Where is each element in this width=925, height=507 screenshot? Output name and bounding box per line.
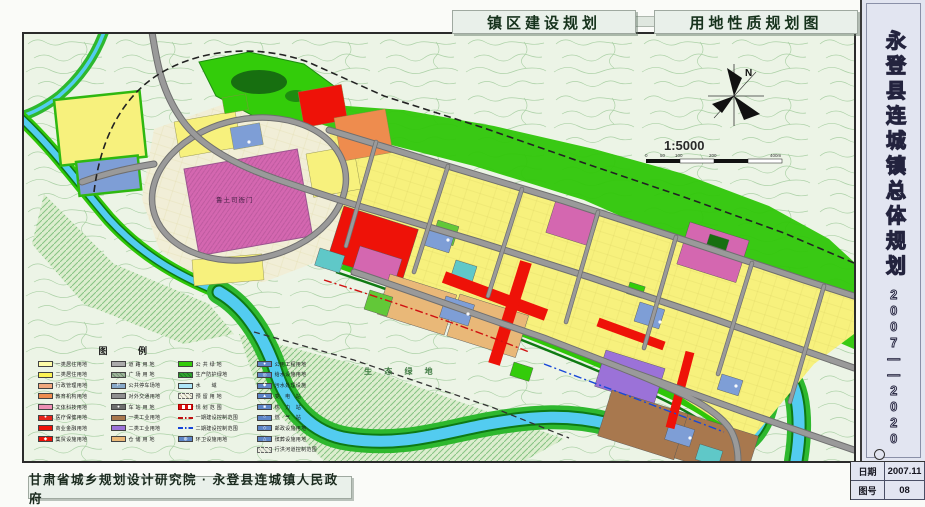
legend-label: 环卫设施用地 — [196, 436, 228, 443]
legend-swatch-icon: ◆ — [44, 437, 47, 442]
legend-swatch-icon: ◎ — [263, 373, 267, 378]
legend-swatch — [111, 425, 126, 431]
scale-text: 1:5000 — [664, 138, 704, 153]
legend-label: 变 电 站 — [275, 393, 302, 400]
scale-tick: 100 — [675, 153, 683, 158]
legend-item: 对外交通用地 — [111, 392, 174, 401]
plan-title-vertical: 永登县连城镇总体规划 — [884, 30, 904, 280]
legend-label: 邮政设施用地 — [275, 425, 307, 432]
legend-item: ◍环卫设施用地 — [178, 435, 253, 444]
legend-swatch-icon: ◇ — [263, 426, 266, 431]
legend-item: ■热 力 站 — [257, 403, 334, 412]
legend-swatch — [38, 425, 53, 431]
legend-swatch — [38, 393, 53, 399]
legend-swatch: ○ — [257, 415, 272, 421]
legend-item: 教育机构用地 — [38, 392, 107, 401]
legend-item: 公 共 绿 地 — [178, 360, 253, 369]
legend-swatch — [257, 447, 272, 453]
legend-swatch — [38, 372, 53, 378]
legend-label: 商业金融用地 — [56, 425, 88, 432]
legend-item: 广 场 用 地 — [111, 371, 174, 380]
legend-item: 规 划 范 围 — [178, 403, 253, 412]
north-label: N — [745, 68, 752, 79]
legend-item: 生产防护绿地 — [178, 371, 253, 380]
legend-swatch — [38, 404, 53, 410]
legend-item: 二类工业用地 — [111, 424, 174, 433]
title-right: 用地性质规划图 — [654, 10, 858, 34]
legend-item: ●公用工程用地 — [257, 360, 334, 369]
legend-label: 一类居住用地 — [56, 361, 88, 368]
legend-label: 道 路 用 地 — [129, 361, 155, 368]
legend-item: 文体科技用地 — [38, 403, 107, 412]
legend-item: 水 域 — [178, 381, 253, 390]
legend-item: 行洪河道控制范围 — [257, 446, 334, 455]
legend-label: 二期建设控制范围 — [196, 425, 238, 432]
legend-label: 仓 储 用 地 — [129, 436, 155, 443]
legend-item: ◆污水处理设施 — [257, 381, 334, 390]
legend-label: 公共停车场地 — [129, 382, 161, 389]
legend-column-4: ●公用工程用地◎给水设施用地◆污水处理设施▲变 电 站■热 力 站○燃 气 站◇… — [257, 360, 334, 454]
seal-circle-icon — [874, 449, 885, 460]
organisation-bar: 甘肃省城乡规划设计研究院 · 永登县连城镇人民政府 — [28, 476, 352, 499]
legend-item: 二期建设控制范围 — [178, 424, 253, 433]
legend-item: ●车 站 用 地 — [111, 403, 174, 412]
legend-swatch — [178, 417, 193, 419]
legend-item: 一类工业用地 — [111, 413, 174, 422]
legend-item: ○燃 气 站 — [257, 413, 334, 422]
legend-item: 道 路 用 地 — [111, 360, 174, 369]
legend-label: 集贸设施用地 — [56, 436, 88, 443]
legend-item: 一类居住用地 — [38, 360, 107, 369]
legend-swatch-icon: P — [117, 383, 120, 388]
legend-swatch: ◆ — [38, 436, 53, 442]
legend-label: 污水处理设施 — [275, 382, 307, 389]
legend-label: 一类工业用地 — [129, 414, 161, 421]
legend-swatch — [111, 393, 126, 399]
legend-label: 二类工业用地 — [129, 425, 161, 432]
legend-columns: 一类居住用地二类居住用地行政管理用地教育机构用地文体科技用地●医疗保健用地商业金… — [38, 360, 334, 454]
legend-item: 二类居住用地 — [38, 371, 107, 380]
legend-label: 热 力 站 — [275, 404, 302, 411]
legend-swatch-icon: ◆ — [263, 383, 266, 388]
legend-swatch-icon: ● — [44, 415, 47, 420]
date-label: 日期 — [851, 462, 885, 481]
legend-swatch: ● — [111, 404, 126, 410]
legend-swatch — [178, 404, 193, 410]
title-left: 镇区建设规划 — [452, 10, 636, 34]
legend-swatch: △ — [257, 436, 272, 442]
legend-column-2: 道 路 用 地广 场 用 地P公共停车场地对外交通用地●车 站 用 地一类工业用… — [111, 360, 174, 454]
legend-column-3: 公 共 绿 地生产防护绿地水 域预 留 用 地规 划 范 围一期建设控制范围二期… — [178, 360, 253, 454]
legend-swatch: ◎ — [257, 372, 272, 378]
legend-item: ▲变 电 站 — [257, 392, 334, 401]
legend-item: 预 留 用 地 — [178, 392, 253, 401]
legend-title: 图 例 — [38, 344, 222, 357]
legend-swatch — [111, 436, 126, 442]
plan-period-vertical: 2007——2020 — [887, 288, 900, 448]
legend-swatch — [178, 427, 193, 429]
legend-swatch-icon: ◍ — [184, 437, 188, 442]
scale-tick: 400m — [770, 153, 782, 158]
legend-swatch: ◇ — [257, 425, 272, 431]
legend-swatch — [111, 361, 126, 367]
eco-green-label: 生 态 绿 地 — [364, 366, 438, 376]
legend-swatch-icon: ○ — [263, 415, 266, 420]
legend-swatch — [178, 393, 193, 399]
legend-item: ◇邮政设施用地 — [257, 424, 334, 433]
legend-item: 行政管理用地 — [38, 381, 107, 390]
legend-column-1: 一类居住用地二类居住用地行政管理用地教育机构用地文体科技用地●医疗保健用地商业金… — [38, 360, 107, 454]
map-panel: N 1:5000 0 50 100 200 400m 生 态 绿 地 鲁土司衙门… — [22, 32, 856, 463]
sheet-no-value: 08 — [885, 481, 925, 500]
legend-label: 预 留 用 地 — [196, 393, 222, 400]
legend-swatch: ● — [38, 415, 53, 421]
legend-swatch-icon: △ — [263, 437, 266, 442]
legend-swatch: ▲ — [257, 393, 272, 399]
scale-tick: 50 — [660, 153, 666, 158]
legend-swatch-icon: ▲ — [262, 394, 266, 399]
legend-swatch: P — [111, 383, 126, 389]
legend-item: 仓 储 用 地 — [111, 435, 174, 444]
legend-item: ◎给水设施用地 — [257, 371, 334, 380]
legend-swatch — [111, 372, 126, 378]
legend-label: 一期建设控制范围 — [196, 414, 238, 421]
legend-label: 燃 气 站 — [275, 414, 302, 421]
scale-tick: 200 — [709, 153, 717, 158]
legend-label: 殡葬设施用地 — [275, 436, 307, 443]
legend-item: ◆集贸设施用地 — [38, 435, 107, 444]
legend-swatch — [38, 383, 53, 389]
legend-label: 对外交通用地 — [129, 393, 161, 400]
legend-label: 规 划 范 围 — [196, 404, 222, 411]
legend-label: 二类居住用地 — [56, 371, 88, 378]
legend-swatch — [178, 383, 193, 389]
legend-label: 水 域 — [196, 382, 217, 389]
legend-item: ●医疗保健用地 — [38, 413, 107, 422]
legend-swatch-icon: ● — [117, 405, 120, 410]
legend-label: 行政管理用地 — [56, 382, 88, 389]
stamp-table: 日期 2007.11 图号 08 — [850, 461, 925, 500]
legend-swatch — [178, 372, 193, 378]
legend-swatch: ◍ — [178, 436, 193, 442]
legend-swatch — [178, 361, 193, 367]
legend-swatch — [38, 361, 53, 367]
legend-swatch: ◆ — [257, 383, 272, 389]
date-value: 2007.11 — [885, 462, 925, 481]
sidebar: 永登县连城镇总体规划 2007——2020 — [860, 0, 925, 500]
legend-item: P公共停车场地 — [111, 381, 174, 390]
legend-item: △殡葬设施用地 — [257, 435, 334, 444]
heritage-label: 鲁土司衙门 — [216, 195, 254, 204]
legend-label: 文体科技用地 — [56, 404, 88, 411]
legend-swatch-icon: ● — [263, 362, 266, 367]
legend-item: 一期建设控制范围 — [178, 413, 253, 422]
sheet-no-label: 图号 — [851, 481, 885, 500]
legend-label: 公用工程用地 — [275, 361, 307, 368]
legend-label: 给水设施用地 — [275, 371, 307, 378]
legend-label: 医疗保健用地 — [56, 414, 88, 421]
legend-label: 生产防护绿地 — [196, 371, 228, 378]
legend-label: 公 共 绿 地 — [196, 361, 222, 368]
legend-swatch-icon: ■ — [263, 405, 266, 410]
legend-swatch: ■ — [257, 404, 272, 410]
legend-item: 商业金融用地 — [38, 424, 107, 433]
legend-label: 广 场 用 地 — [129, 371, 155, 378]
legend-label: 车 站 用 地 — [129, 404, 155, 411]
sidebar-panel: 永登县连城镇总体规划 2007——2020 — [866, 3, 921, 458]
legend-label: 行洪河道控制范围 — [275, 446, 317, 453]
legend-label: 教育机构用地 — [56, 393, 88, 400]
legend-swatch — [111, 415, 126, 421]
legend: 图 例 一类居住用地二类居住用地行政管理用地教育机构用地文体科技用地●医疗保健用… — [38, 344, 334, 458]
legend-swatch: ● — [257, 361, 272, 367]
